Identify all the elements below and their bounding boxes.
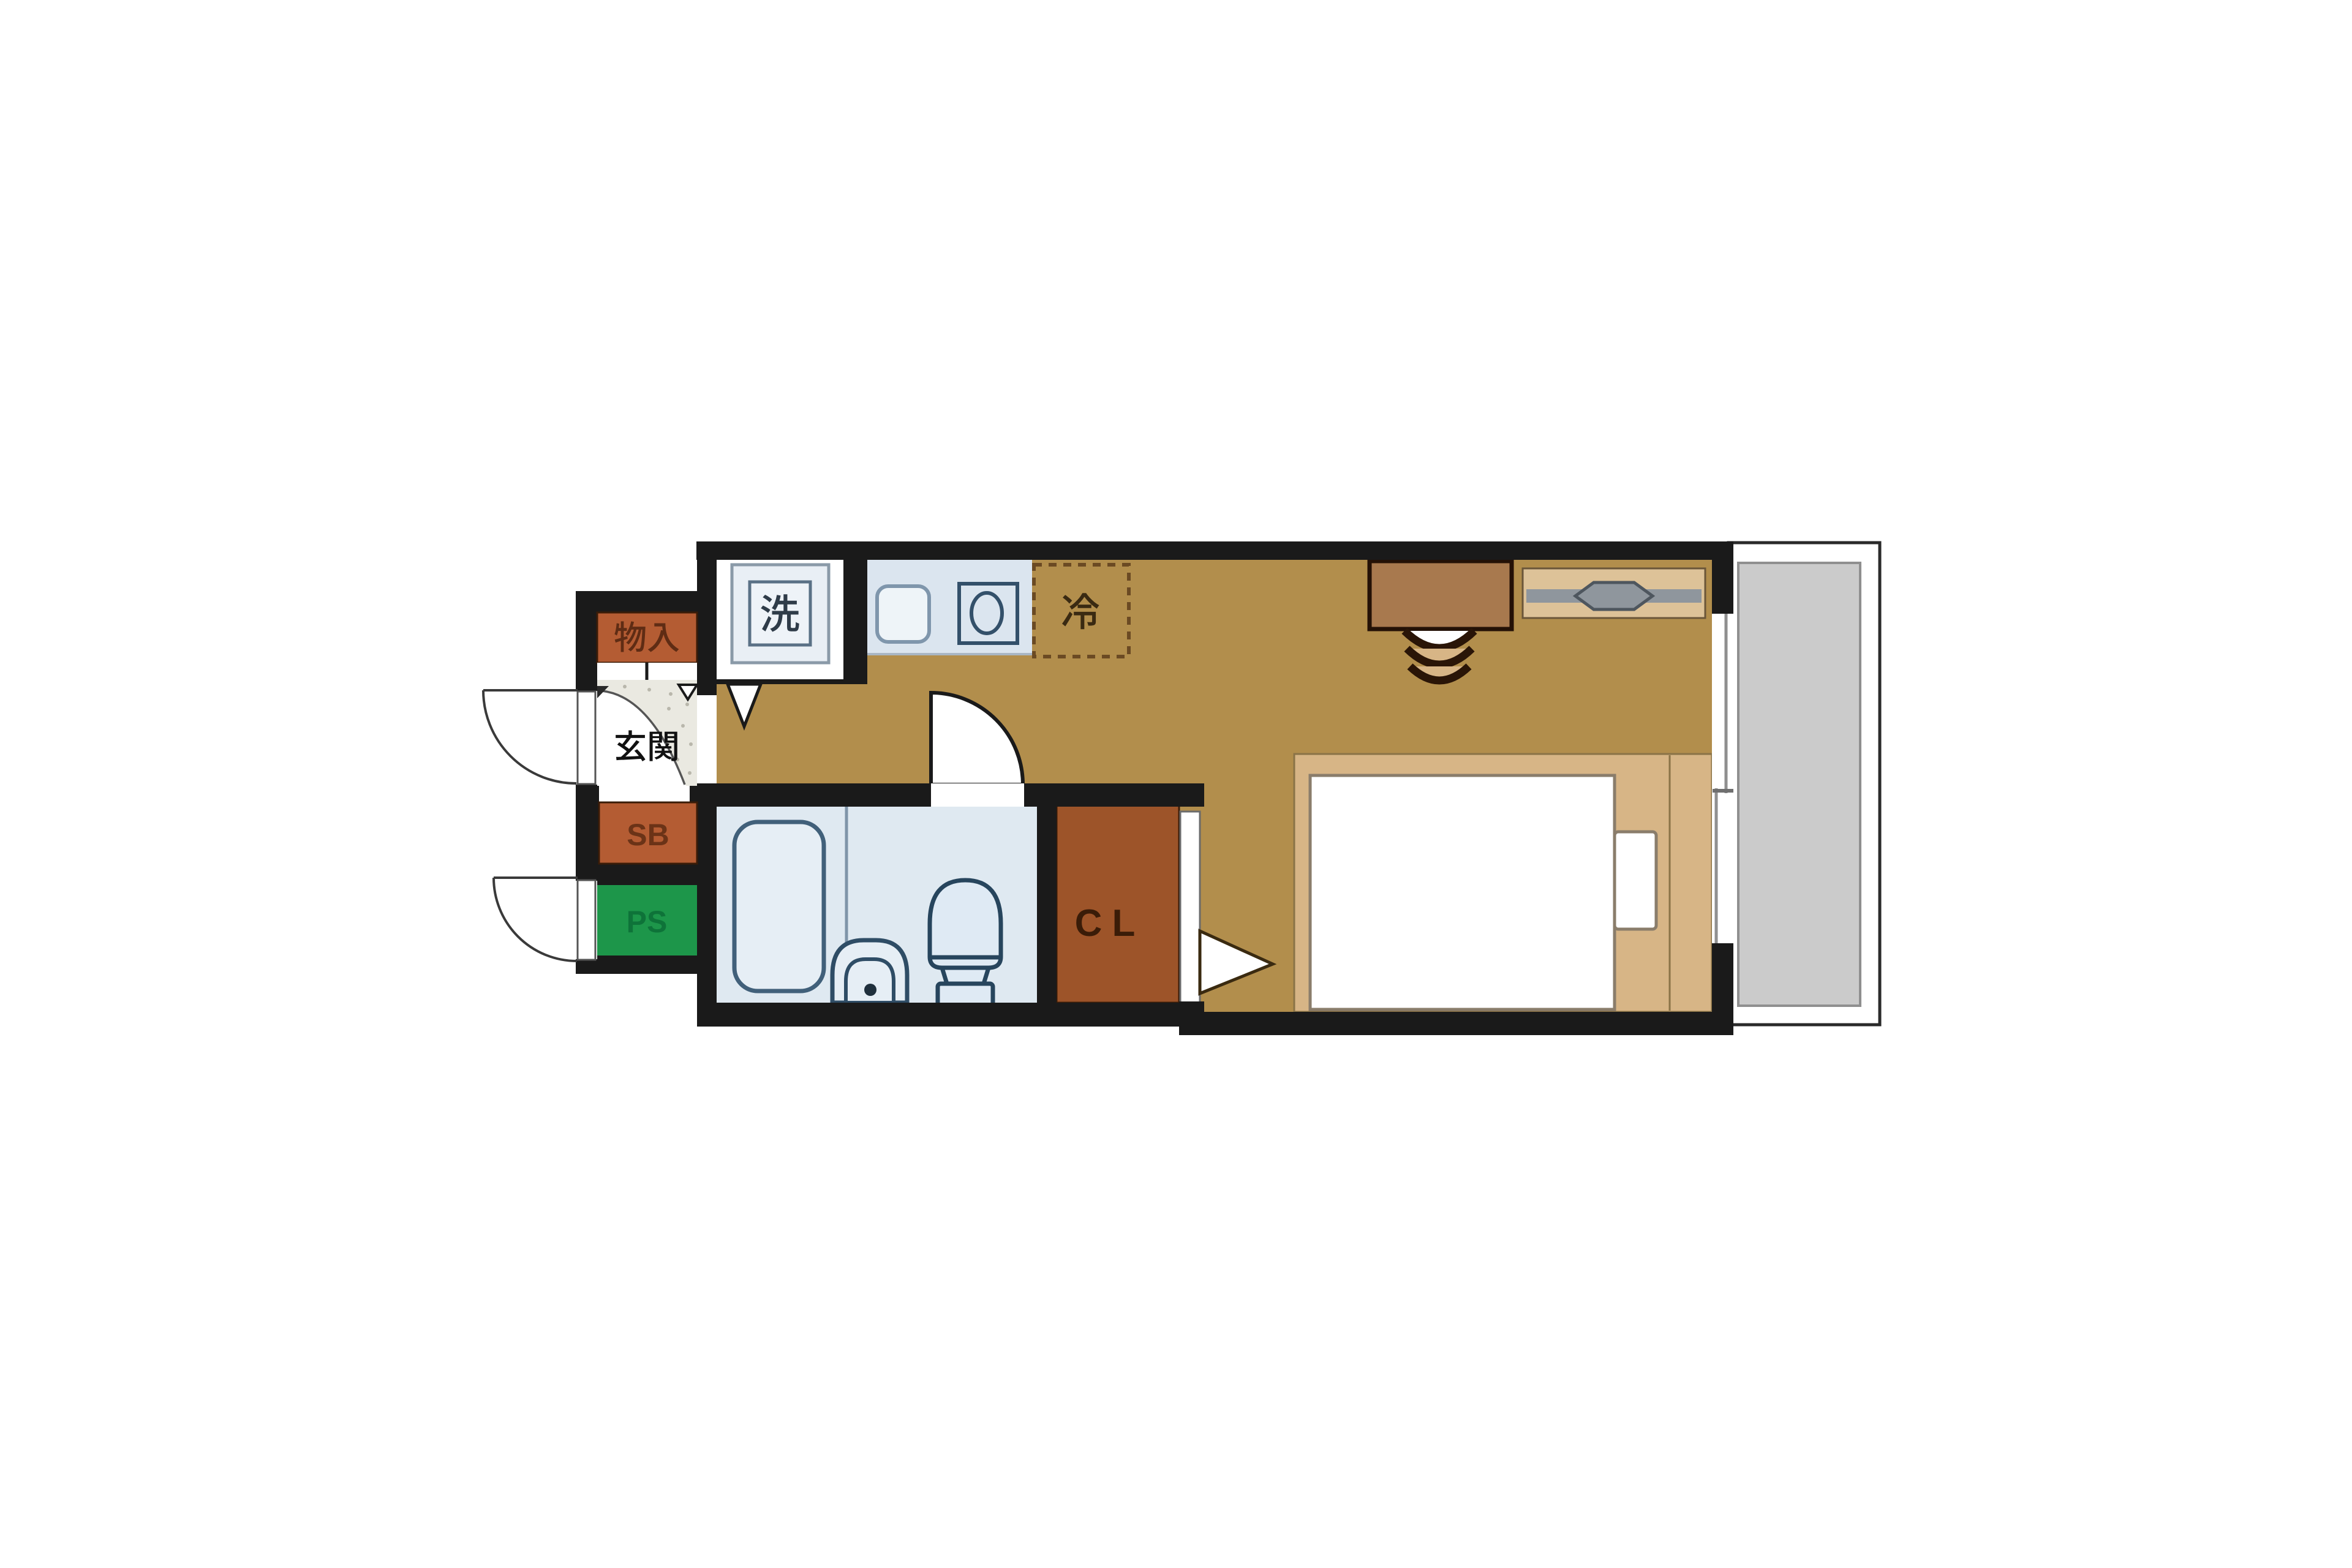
svg-text:CL: CL [1075, 902, 1145, 944]
svg-text:PS: PS [627, 905, 668, 939]
svg-text:SB: SB [627, 818, 669, 852]
